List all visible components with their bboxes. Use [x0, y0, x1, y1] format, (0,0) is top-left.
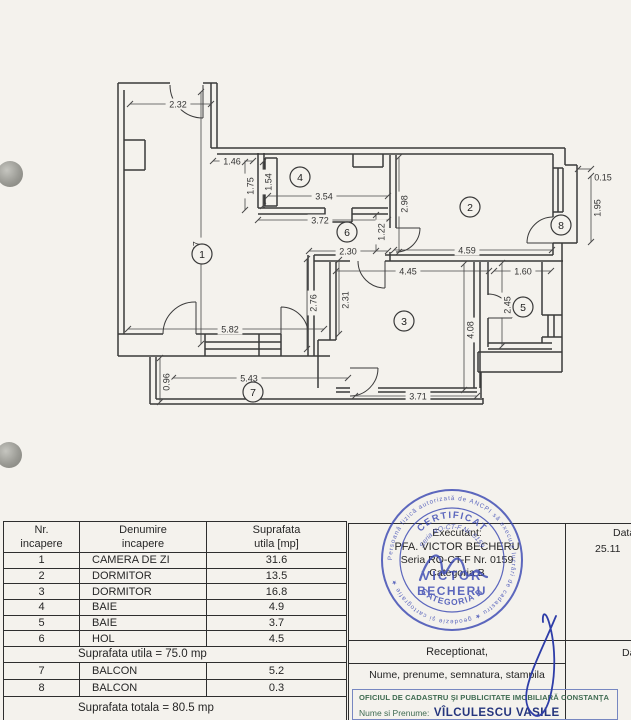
dimension-label: 2.76 — [308, 294, 318, 312]
room-number: 6 — [344, 227, 350, 239]
dimension-label: 3.72 — [311, 215, 329, 225]
room-number-cell: 5 — [4, 616, 80, 631]
room-table-header: Nr. incapere Denumire incapere Suprafata… — [4, 522, 346, 553]
data-header: Data — [613, 527, 631, 539]
room-area-cell: 4.5 — [207, 631, 346, 646]
room-number: 3 — [401, 316, 407, 328]
room-number: 2 — [467, 202, 473, 214]
room-name-cell: DORMITOR — [80, 584, 207, 599]
scanned-cadastral-page: { "page": { "bg": "#f4f2ed" }, "plan": {… — [0, 0, 631, 720]
dimension-label: 2.30 — [339, 246, 357, 256]
room-number: 8 — [558, 220, 564, 232]
room-number: 5 — [520, 302, 526, 314]
room-name-cell: BAIE — [80, 600, 207, 615]
dimension-label: 2.98 — [399, 195, 409, 213]
room-number-cell: 1 — [4, 553, 80, 568]
header-line: Nr. — [4, 524, 79, 536]
door-swing — [350, 368, 378, 396]
room-area-cell: 13.5 — [207, 569, 346, 584]
room-area-cell: 0.3 — [207, 680, 346, 696]
header-suprafata: Suprafata utila [mp] — [207, 522, 346, 552]
table-row: 6HOL4.5 — [4, 631, 346, 647]
dimension-label: 1.46 — [223, 156, 241, 166]
dimension-label: 5.82 — [221, 324, 239, 334]
table-row: 4BAIE4.9 — [4, 600, 346, 616]
dimension-label: 0.96 — [161, 373, 171, 391]
room-number-cell: 2 — [4, 569, 80, 584]
floor-plan: 2.327.671.461.751.543.543.722.301.222.98… — [0, 0, 631, 505]
table-row: 2DORMITOR13.5 — [4, 569, 346, 585]
room-name-cell: HOL — [80, 631, 207, 646]
door-swing — [281, 307, 308, 334]
table-row: 3DORMITOR16.8 — [4, 584, 346, 600]
room-area-cell: 31.6 — [207, 553, 346, 568]
room-number: 4 — [297, 172, 303, 184]
room-name-cell: BALCON — [80, 663, 207, 679]
room-number-cell: 7 — [4, 663, 80, 679]
room-name-cell: BALCON — [80, 680, 207, 696]
dimension-label: 1.22 — [376, 223, 386, 241]
dimension-label: 4.45 — [399, 266, 417, 276]
dimension-label: 2.32 — [169, 99, 187, 109]
room-number: 7 — [250, 387, 256, 399]
room-name-cell: CAMERA DE ZI — [80, 553, 207, 568]
door-swing — [527, 217, 553, 243]
room-area-cell: 3.7 — [207, 616, 346, 631]
signature-loop — [505, 600, 587, 720]
dimension-label: 4.59 — [458, 245, 476, 255]
rows-balconies: 7BALCON5.28BALCON0.3 — [4, 663, 346, 697]
header-line: utila [mp] — [207, 538, 346, 550]
header-line: incapere — [80, 538, 206, 550]
dimension-label: 0.15 — [594, 172, 612, 182]
dimension-label: 1.60 — [514, 266, 532, 276]
data-value: 25.11 — [595, 543, 621, 555]
dimension-label: 2.45 — [502, 296, 512, 314]
door-swing — [358, 261, 385, 288]
dimension-label: 1.95 — [592, 199, 602, 217]
room-area-cell: 4.9 — [207, 600, 346, 615]
header-line: Suprafata — [207, 524, 346, 536]
subtotal-text: Suprafata utila = 75.0 mp — [78, 648, 207, 660]
data-header: Data — [622, 647, 631, 659]
room-number-cell: 6 — [4, 631, 80, 646]
header-denumire: Denumire incapere — [80, 522, 207, 552]
dimension-label: 2.31 — [340, 291, 350, 309]
table-row: 8BALCON0.3 — [4, 680, 346, 697]
room-area-cell: 5.2 — [207, 663, 346, 679]
room-number-cell: 3 — [4, 584, 80, 599]
dimension-label: 1.54 — [263, 173, 273, 191]
header-line: Denumire — [80, 524, 206, 536]
signature-stroke — [526, 614, 556, 716]
rows-main: 1CAMERA DE ZI31.62DORMITOR13.53DORMITOR1… — [4, 553, 346, 647]
total-row: Suprafata totala = 80.5 mp — [4, 697, 346, 720]
table-row: 7BALCON5.2 — [4, 663, 346, 680]
room-number-cell: 4 — [4, 600, 80, 615]
dimension-label: 4.08 — [465, 321, 475, 339]
dimension-label: 3.54 — [315, 191, 333, 201]
room-area-cell: 16.8 — [207, 584, 346, 599]
header-line: incapere — [4, 538, 79, 550]
header-nr: Nr. incapere — [4, 522, 80, 552]
total-text: Suprafata totala = 80.5 mp — [78, 702, 214, 714]
door-swing — [396, 228, 420, 252]
subtotal-row: Suprafata utila = 75.0 mp — [4, 647, 346, 663]
room-area-table: Nr. incapere Denumire incapere Suprafata… — [3, 521, 347, 720]
room-name-cell: DORMITOR — [80, 569, 207, 584]
room-name-cell: BAIE — [80, 616, 207, 631]
table-row: 5BAIE3.7 — [4, 616, 346, 632]
table-row: 1CAMERA DE ZI31.6 — [4, 553, 346, 569]
dimension-label: 1.75 — [245, 177, 255, 195]
room-number-cell: 8 — [4, 680, 80, 696]
receptionat-label: Receptionat, — [426, 646, 488, 658]
stamp-first-name: VICTOR — [422, 568, 483, 583]
room-number: 1 — [199, 249, 205, 261]
ocpi-name-label: Nume si Prenume: — [359, 708, 429, 718]
dimension-label: 3.71 — [409, 391, 427, 401]
